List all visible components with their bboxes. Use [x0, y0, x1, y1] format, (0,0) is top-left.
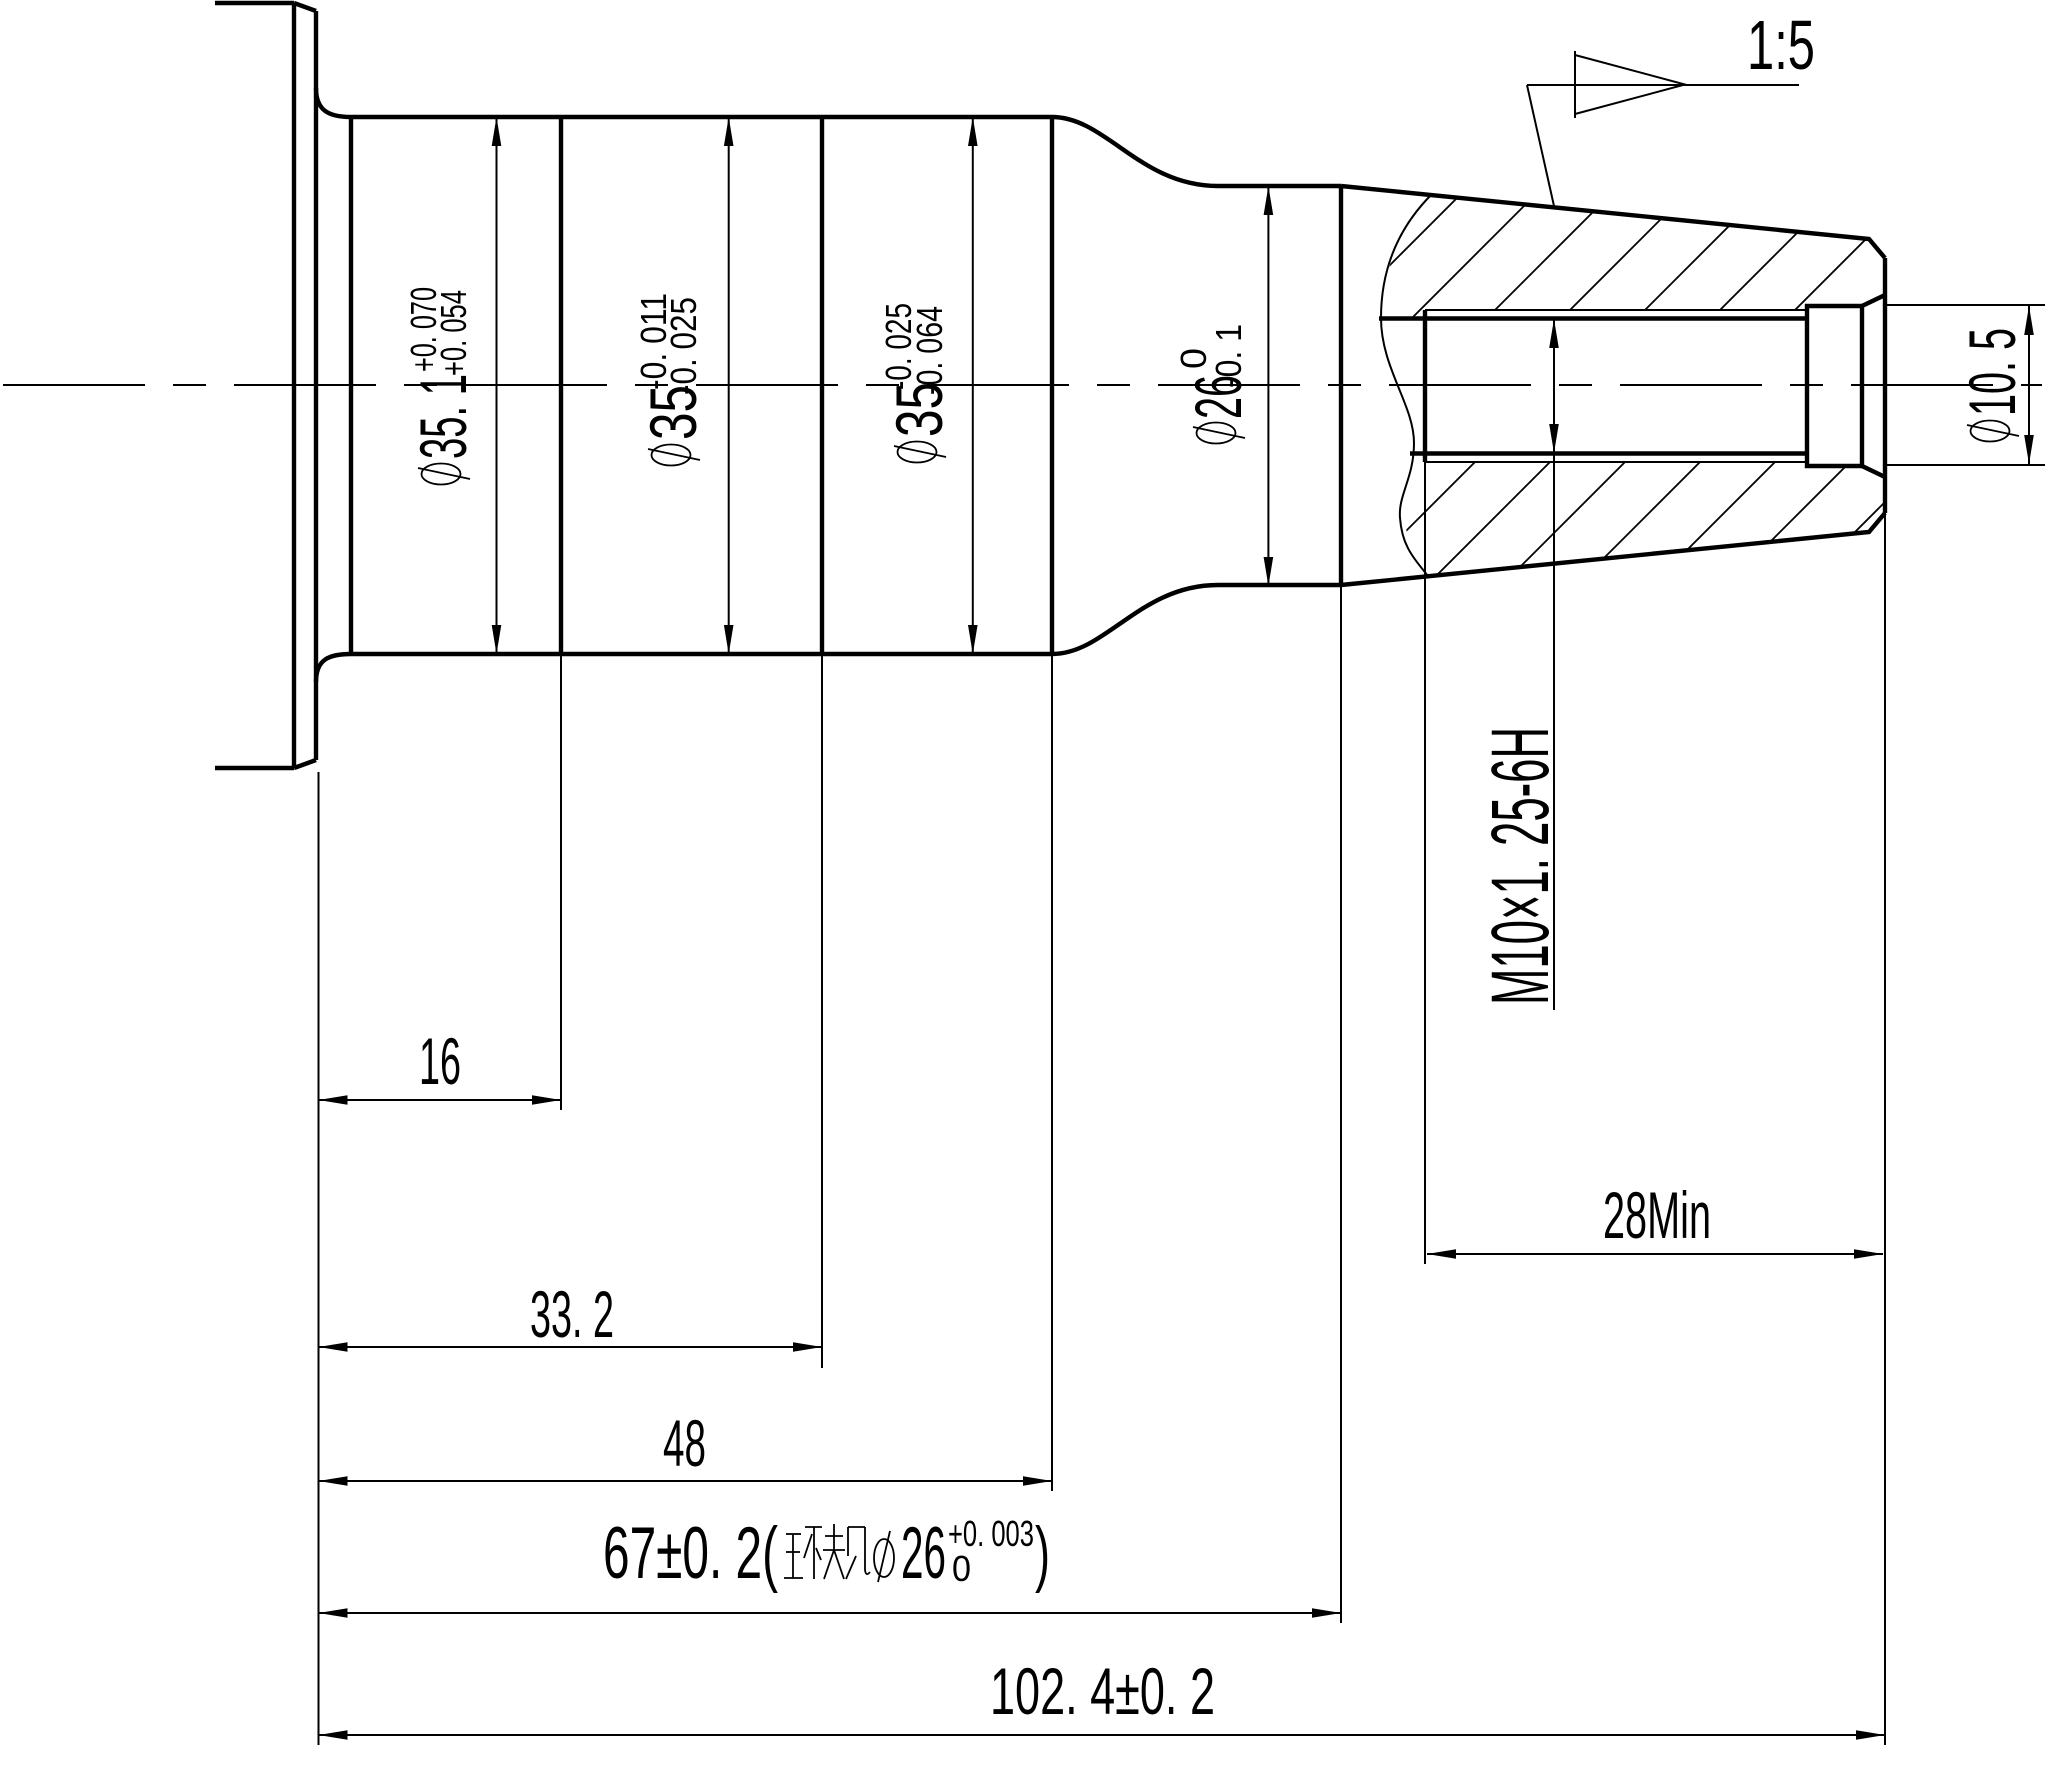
svg-text:35. 1: 35. 1	[406, 374, 480, 459]
svg-text:-0. 025: -0. 025	[663, 297, 704, 395]
svg-text:-0. 1: -0. 1	[1208, 324, 1249, 388]
svg-text:16: 16	[419, 1024, 461, 1098]
svg-text:M10×1. 25-6H: M10×1. 25-6H	[1475, 727, 1566, 1005]
svg-text:102. 4±0. 2: 102. 4±0. 2	[990, 1654, 1215, 1728]
svg-text:48: 48	[663, 1406, 706, 1480]
svg-text:33. 2: 33. 2	[530, 1277, 614, 1351]
svg-text:-0. 064: -0. 064	[909, 306, 950, 395]
svg-text:0: 0	[952, 1548, 971, 1589]
svg-text:): )	[1035, 1513, 1050, 1594]
svg-text:+0. 054: +0. 054	[433, 290, 474, 376]
svg-text:10. 5: 10. 5	[1955, 328, 2029, 416]
svg-text:28Min: 28Min	[1603, 1178, 1711, 1252]
svg-text:67±0. 2(: 67±0. 2(	[603, 1513, 778, 1594]
svg-text:1:5: 1:5	[1747, 6, 1815, 84]
svg-text:26: 26	[901, 1513, 946, 1594]
